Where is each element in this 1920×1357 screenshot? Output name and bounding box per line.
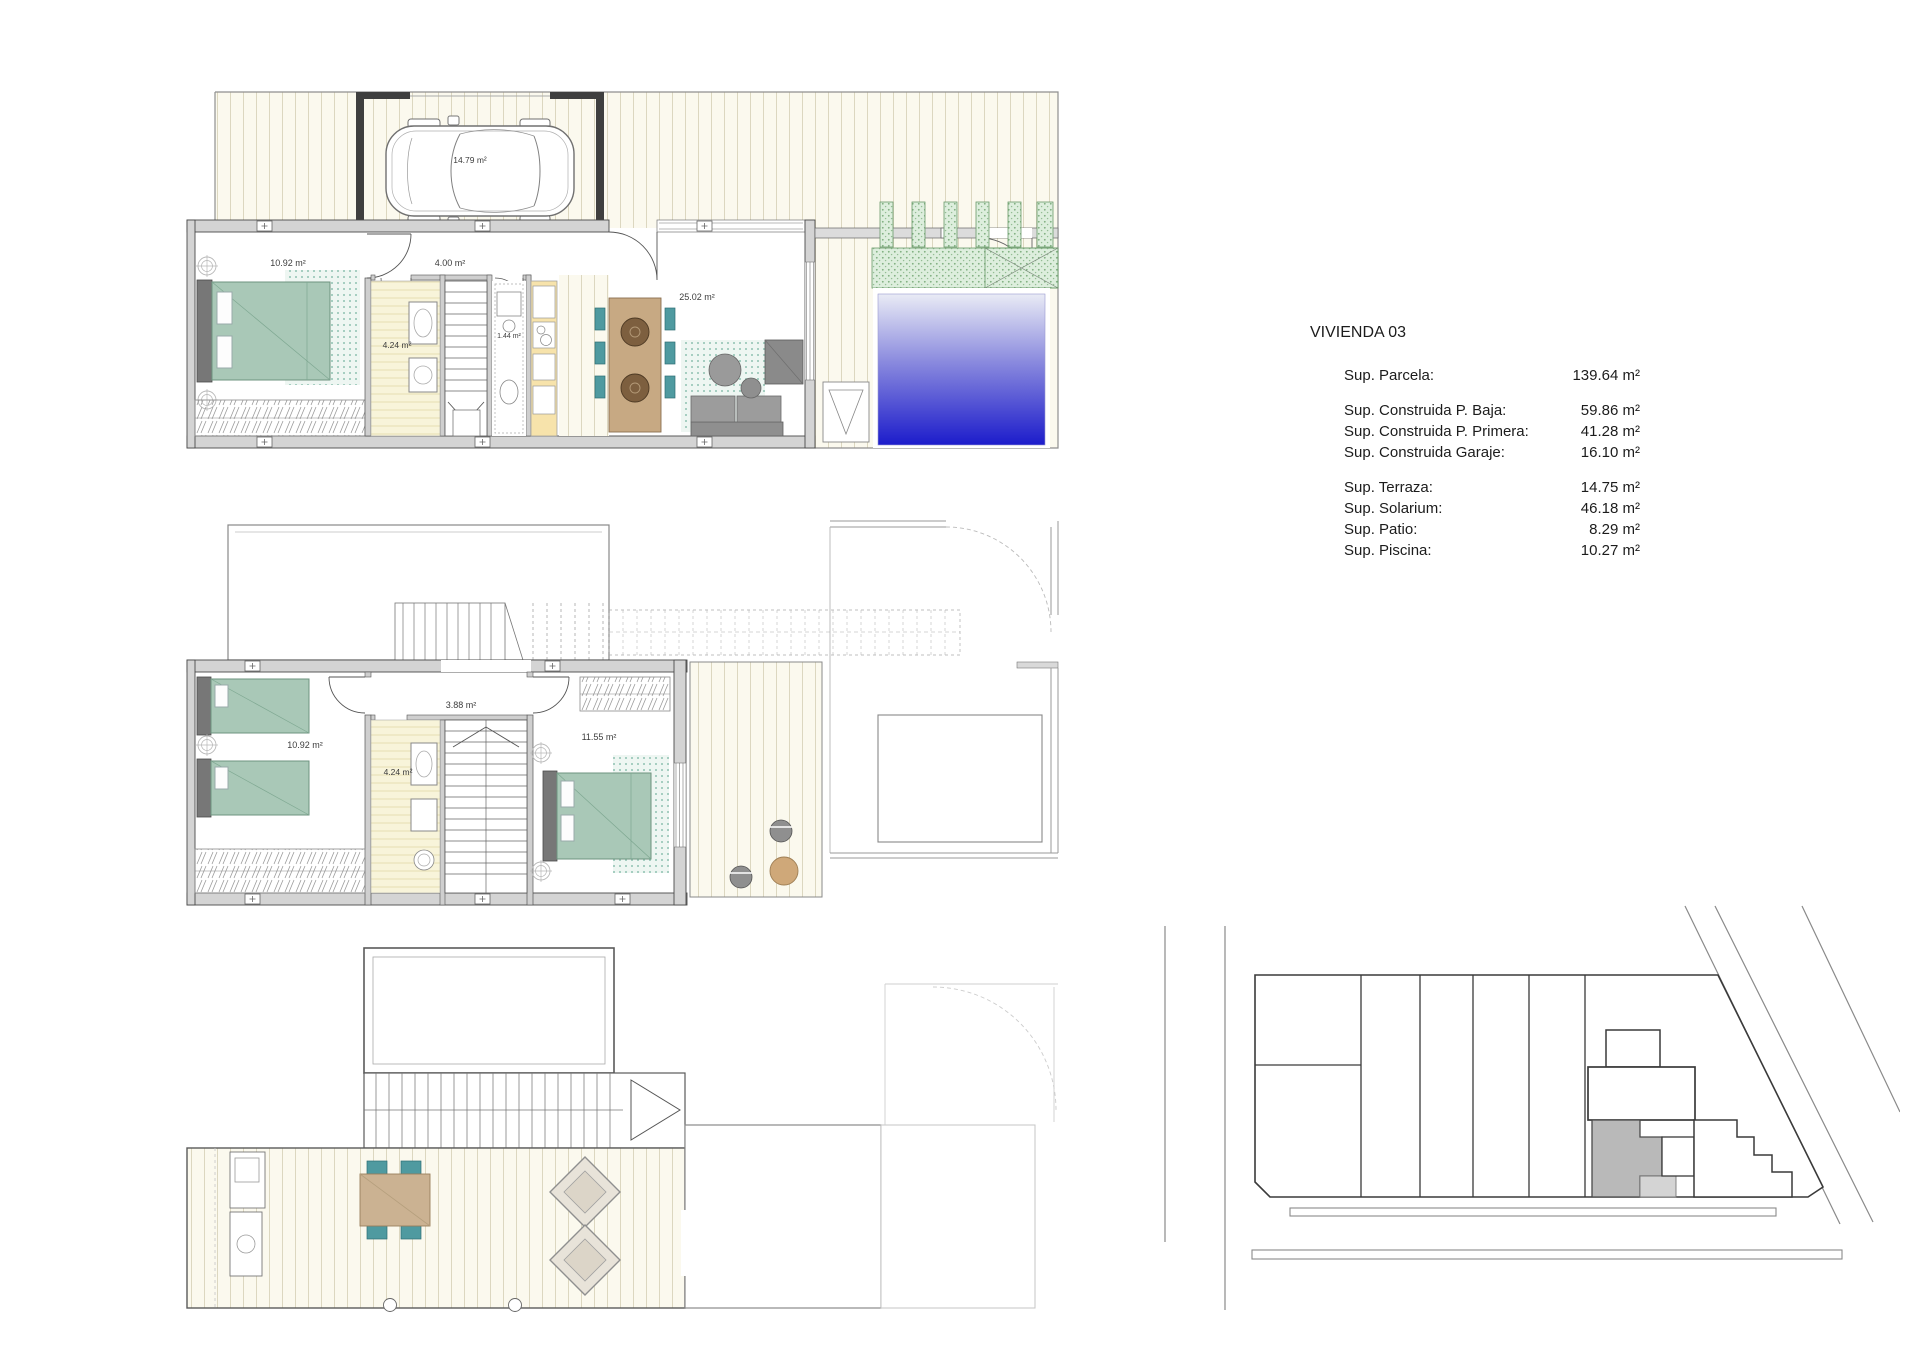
row-value: 59.86 m² (1581, 400, 1640, 421)
first-courtyard (228, 525, 960, 660)
solarium-floor-plan (185, 940, 1065, 1315)
row-label: Sup. Construida Garaje: (1344, 442, 1505, 463)
first-bathroom: 4.24 m² (371, 720, 440, 893)
architectural-sheet: 14.79 m² (0, 0, 1920, 1357)
row-value: 8.29 m² (1589, 519, 1640, 540)
ground-wc: 1.44 m² (492, 281, 526, 436)
ground-stairs (445, 281, 487, 436)
living-area-label: 25.02 m² (679, 292, 715, 302)
door-pivot (509, 1299, 522, 1312)
row-label: Sup. Parcela: (1344, 365, 1434, 386)
car (386, 116, 574, 226)
bath-area-label: 4.24 m² (384, 767, 413, 777)
door-pivot (384, 1299, 397, 1312)
wardrobe (195, 849, 365, 893)
info-row-patio: Sup. Patio: 8.29 m² (1310, 519, 1640, 540)
unit-title: VIVIENDA 03 (1310, 324, 1640, 342)
info-panel: VIVIENDA 03 Sup. Parcela: 139.64 m² Sup.… (1310, 324, 1640, 561)
info-row-solarium: Sup. Solarium: 46.18 m² (1310, 498, 1640, 519)
info-row-piscina: Sup. Piscina: 10.27 m² (1310, 540, 1640, 561)
first-patio-right (830, 521, 1058, 858)
hall-area-label: 3.88 m² (446, 700, 477, 710)
info-row-construida-baja: Sup. Construida P. Baja: 59.86 m² (1310, 400, 1640, 421)
ground-floor-plan: 14.79 m² (185, 70, 1065, 455)
wc-area-label: 1.44 m² (497, 333, 521, 340)
row-value: 14.75 m² (1581, 477, 1640, 498)
wardrobe (580, 677, 670, 711)
ground-bedroom: 10.92 m² (195, 255, 365, 436)
solarium-stairs (364, 1073, 685, 1148)
first-floor-plan: 3.88 m² 10.92 m² 4.24 (185, 515, 1065, 910)
first-stairs (445, 720, 527, 893)
stair-bulkhead (364, 948, 614, 1073)
bedroom-left-area-label: 10.92 m² (287, 740, 323, 750)
solarium-deck (187, 1148, 685, 1312)
swimming-pool (878, 294, 1045, 445)
first-terrace (690, 662, 822, 897)
bedroom-area-label: 10.92 m² (270, 258, 306, 268)
row-value: 41.28 m² (1581, 421, 1640, 442)
ground-bathroom: 4.24 m² (371, 281, 440, 436)
row-value: 139.64 m² (1572, 365, 1640, 386)
row-label: Sup. Construida P. Primera: (1344, 421, 1529, 442)
info-row-construida-garaje: Sup. Construida Garaje: 16.10 m² (1310, 442, 1640, 463)
row-label: Sup. Solarium: (1344, 498, 1442, 519)
garage-area-label: 14.79 m² (453, 155, 487, 165)
row-value: 16.10 m² (1581, 442, 1640, 463)
site-block (1255, 975, 1823, 1197)
kitchenette (230, 1152, 265, 1276)
bedroom-right-area-label: 11.55 m² (582, 732, 617, 742)
solarium-terrace-right (681, 984, 1058, 1308)
wardrobe (195, 400, 365, 436)
row-value: 46.18 m² (1581, 498, 1640, 519)
row-label: Sup. Construida P. Baja: (1344, 400, 1506, 421)
row-label: Sup. Piscina: (1344, 540, 1432, 561)
row-value: 10.27 m² (1581, 540, 1640, 561)
site-plan (1140, 890, 1900, 1330)
info-row-terraza: Sup. Terraza: 14.75 m² (1310, 477, 1640, 498)
info-row-construida-primera: Sup. Construida P. Primera: 41.28 m² (1310, 421, 1640, 442)
row-label: Sup. Patio: (1344, 519, 1417, 540)
bath-area-label: 4.24 m² (383, 340, 412, 350)
hall-area-label: 4.00 m² (435, 258, 466, 268)
outdoor-shower (823, 382, 869, 442)
info-row-parcela: Sup. Parcela: 139.64 m² (1310, 365, 1640, 386)
row-label: Sup. Terraza: (1344, 477, 1433, 498)
